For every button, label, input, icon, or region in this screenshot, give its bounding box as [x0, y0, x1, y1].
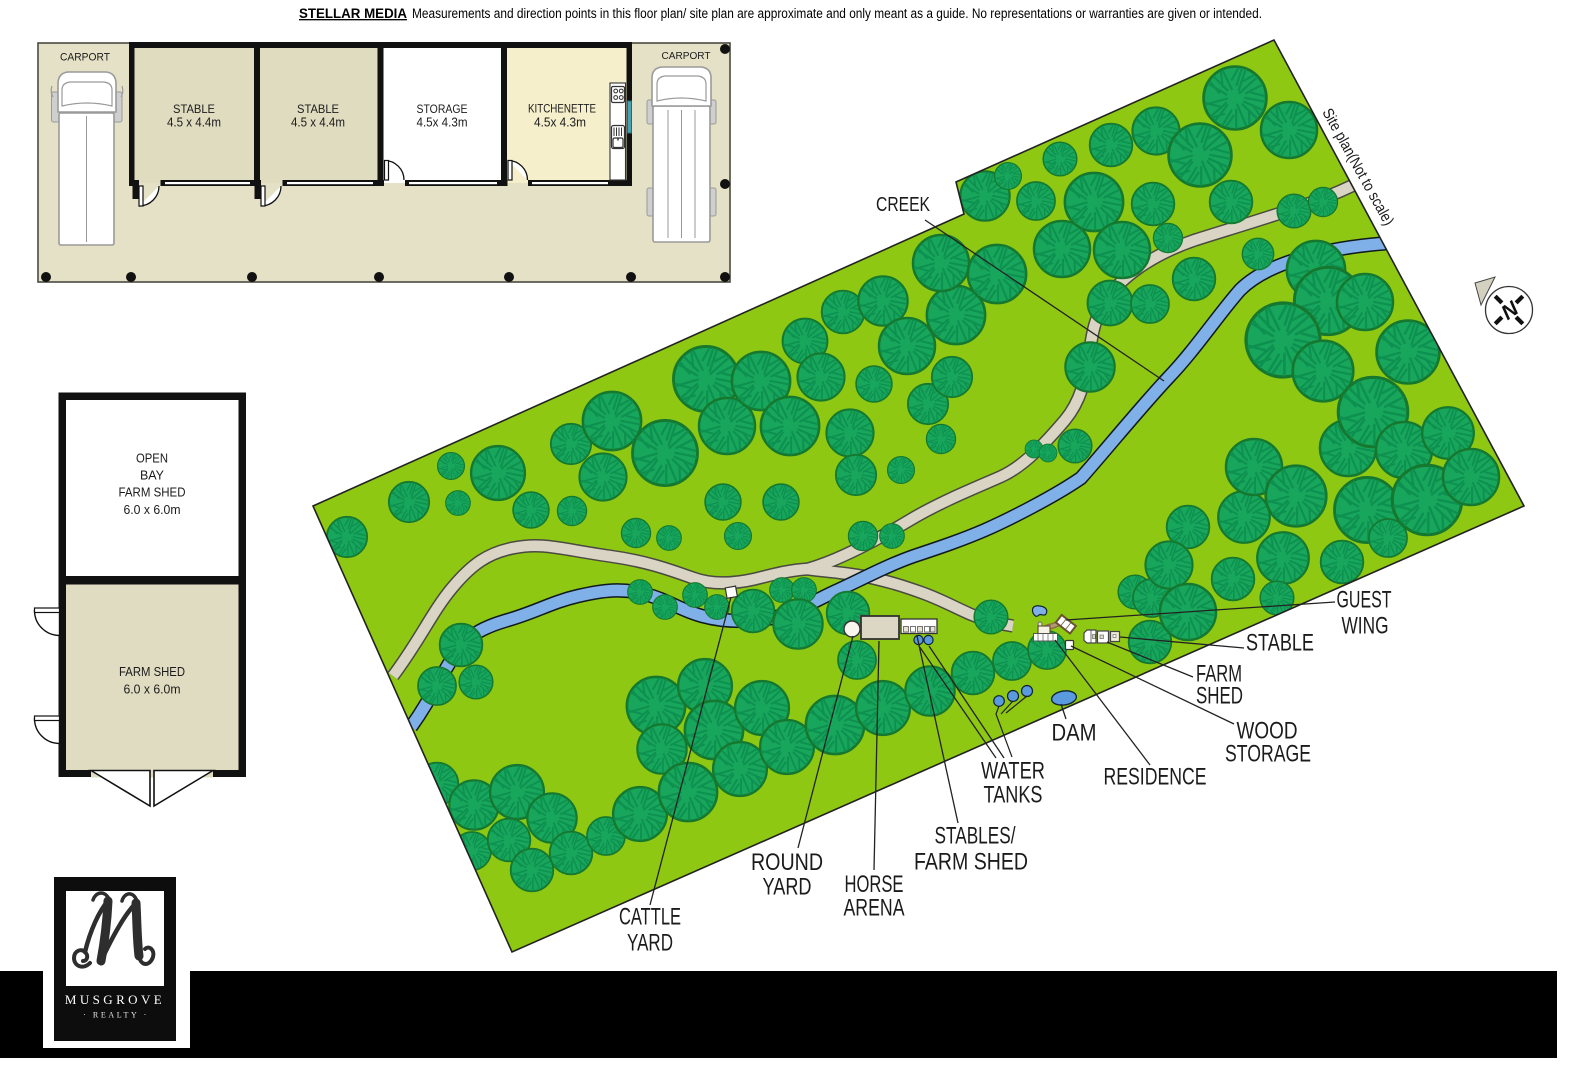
svg-text:RESIDENCE: RESIDENCE: [1104, 764, 1207, 791]
svg-text:WATER: WATER: [981, 758, 1045, 785]
svg-text:STABLES/: STABLES/: [935, 823, 1016, 850]
svg-text:YARD: YARD: [627, 930, 673, 957]
svg-text:KITCHENETTE: KITCHENETTE: [528, 102, 596, 116]
svg-text:WING: WING: [1342, 613, 1389, 640]
svg-text:CARPORT: CARPORT: [662, 50, 712, 62]
svg-text:STABLE: STABLE: [1246, 630, 1314, 657]
svg-text:YARD: YARD: [763, 874, 812, 901]
svg-text:4.5x 4.3m: 4.5x 4.3m: [534, 116, 586, 130]
svg-text:BAY: BAY: [140, 469, 165, 483]
svg-text:6.0 x 6.0m: 6.0 x 6.0m: [124, 683, 181, 697]
svg-text:Measurements and direction poi: Measurements and direction points in thi…: [412, 6, 1262, 21]
svg-text:· REALTY ·: · REALTY ·: [83, 1011, 149, 1020]
svg-text:STABLE: STABLE: [173, 102, 215, 116]
svg-text:STORAGE: STORAGE: [1225, 741, 1311, 768]
svg-text:STABLE: STABLE: [297, 102, 339, 116]
svg-text:6.0 x 6.0m: 6.0 x 6.0m: [124, 503, 181, 517]
svg-text:STORAGE: STORAGE: [417, 102, 468, 116]
svg-text:SHED: SHED: [1196, 683, 1243, 710]
svg-text:FARM SHED: FARM SHED: [119, 665, 185, 679]
svg-text:FARM SHED: FARM SHED: [914, 849, 1028, 876]
svg-text:ARENA: ARENA: [844, 895, 905, 922]
svg-text:GUEST: GUEST: [1337, 587, 1392, 614]
svg-text:TANKS: TANKS: [984, 782, 1043, 809]
svg-text:STELLAR MEDIA: STELLAR MEDIA: [299, 6, 407, 21]
svg-text:CATTLE: CATTLE: [619, 904, 681, 931]
svg-text:MUSGROVE: MUSGROVE: [65, 992, 165, 1007]
svg-text:4.5x 4.3m: 4.5x 4.3m: [417, 116, 468, 130]
svg-text:DAM: DAM: [1052, 720, 1097, 747]
svg-text:4.5 x 4.4m: 4.5 x 4.4m: [167, 116, 221, 130]
svg-text:4.5 x 4.4m: 4.5 x 4.4m: [291, 116, 345, 130]
svg-text:OPEN: OPEN: [136, 452, 168, 466]
svg-text:ROUND: ROUND: [751, 849, 823, 876]
svg-text:CREEK: CREEK: [876, 194, 931, 216]
svg-text:CARPORT: CARPORT: [60, 52, 110, 64]
svg-text:FARM SHED: FARM SHED: [119, 486, 186, 500]
